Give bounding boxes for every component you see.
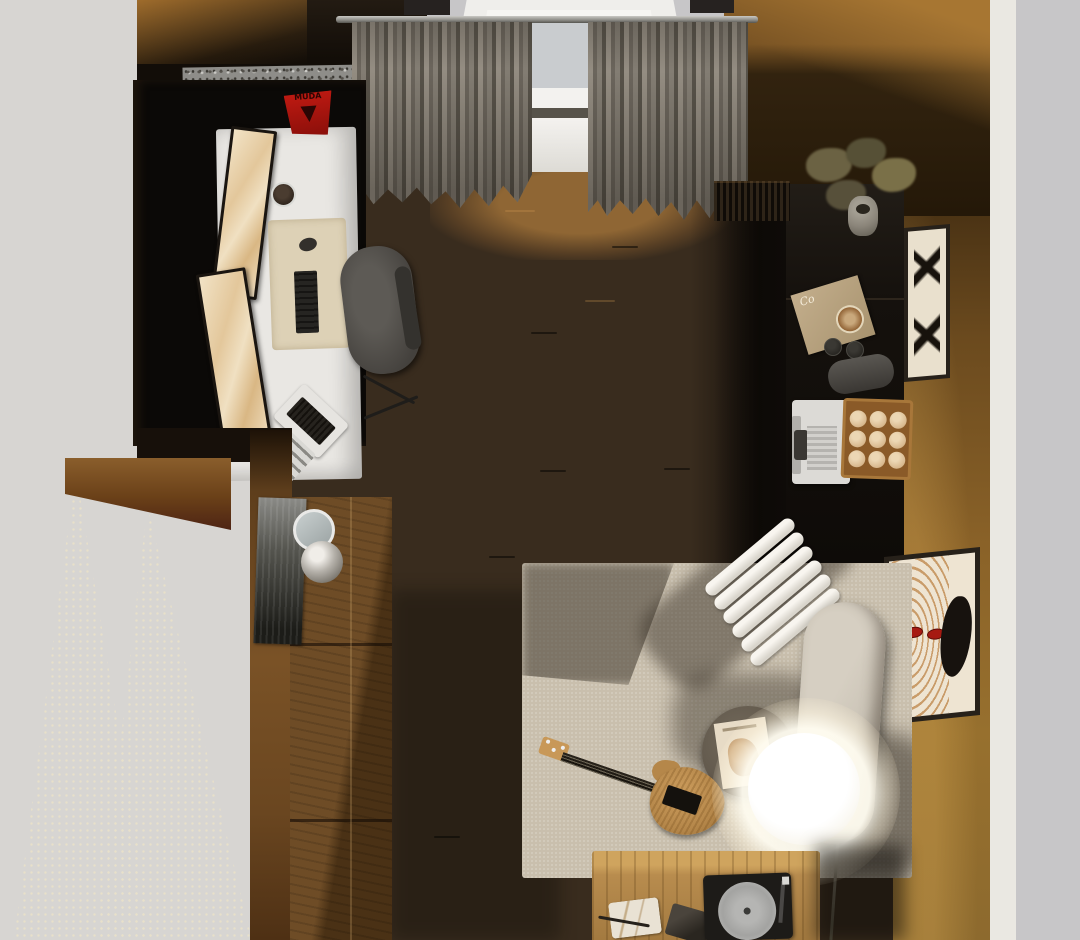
floor-seam (612, 246, 638, 248)
floor-seam (531, 332, 557, 334)
speaker-knob (824, 338, 842, 356)
floor-seam (664, 468, 690, 470)
wardrobe-edge-highlight (350, 497, 352, 940)
magazine-photo (832, 302, 867, 337)
botanical-print-frame (904, 224, 950, 382)
espresso-cup (848, 430, 866, 448)
espresso-cup-tray (841, 398, 914, 480)
tuning-peg (560, 745, 565, 750)
espresso-cup (869, 410, 887, 428)
machine-grouphead (794, 430, 808, 460)
espresso-cup (887, 451, 905, 469)
vinyl-record-row (714, 181, 790, 221)
espresso-cup (888, 431, 906, 449)
espresso-cup (849, 410, 867, 428)
botanical-art (914, 305, 940, 365)
machine-vent (807, 426, 837, 470)
tuning-peg (551, 747, 556, 752)
globe-floor-lamp (748, 733, 860, 845)
top-left-wall (137, 0, 307, 64)
wardrobe-seam (290, 643, 392, 646)
curtain-left (352, 22, 532, 208)
room-render: MUDA Co (0, 0, 1080, 940)
turntable-switch (782, 877, 789, 885)
tonearm (778, 881, 785, 923)
floor-seam (540, 470, 566, 472)
botanical-art (914, 237, 940, 297)
espresso-cup (868, 430, 886, 448)
floor-highlight (505, 210, 535, 212)
keyboard (294, 271, 319, 334)
espresso-cup (868, 450, 886, 468)
floor-seam (489, 556, 515, 558)
plant-vase (848, 196, 878, 236)
coffee-cup (271, 182, 296, 207)
frame-mat (908, 228, 946, 377)
espresso-cup (889, 411, 907, 429)
window-corner-shadow (690, 0, 734, 13)
turntable (703, 872, 793, 940)
vase-opening (856, 204, 870, 214)
exterior-left (0, 0, 137, 460)
magazine-title: Co (798, 292, 816, 309)
tuning-peg (546, 739, 551, 744)
turntable-platter (717, 881, 777, 940)
curtain-rod (336, 16, 758, 23)
wardrobe-seam (290, 819, 392, 822)
sign-graphic (300, 105, 317, 122)
decor-sphere (301, 541, 343, 583)
wall-top-band (990, 0, 1016, 940)
floor-shadow (815, 845, 905, 940)
espresso-cup (848, 449, 866, 467)
sideboard-shadow (714, 184, 788, 566)
floor-highlight (585, 300, 615, 302)
window-corner-shadow (404, 0, 450, 15)
